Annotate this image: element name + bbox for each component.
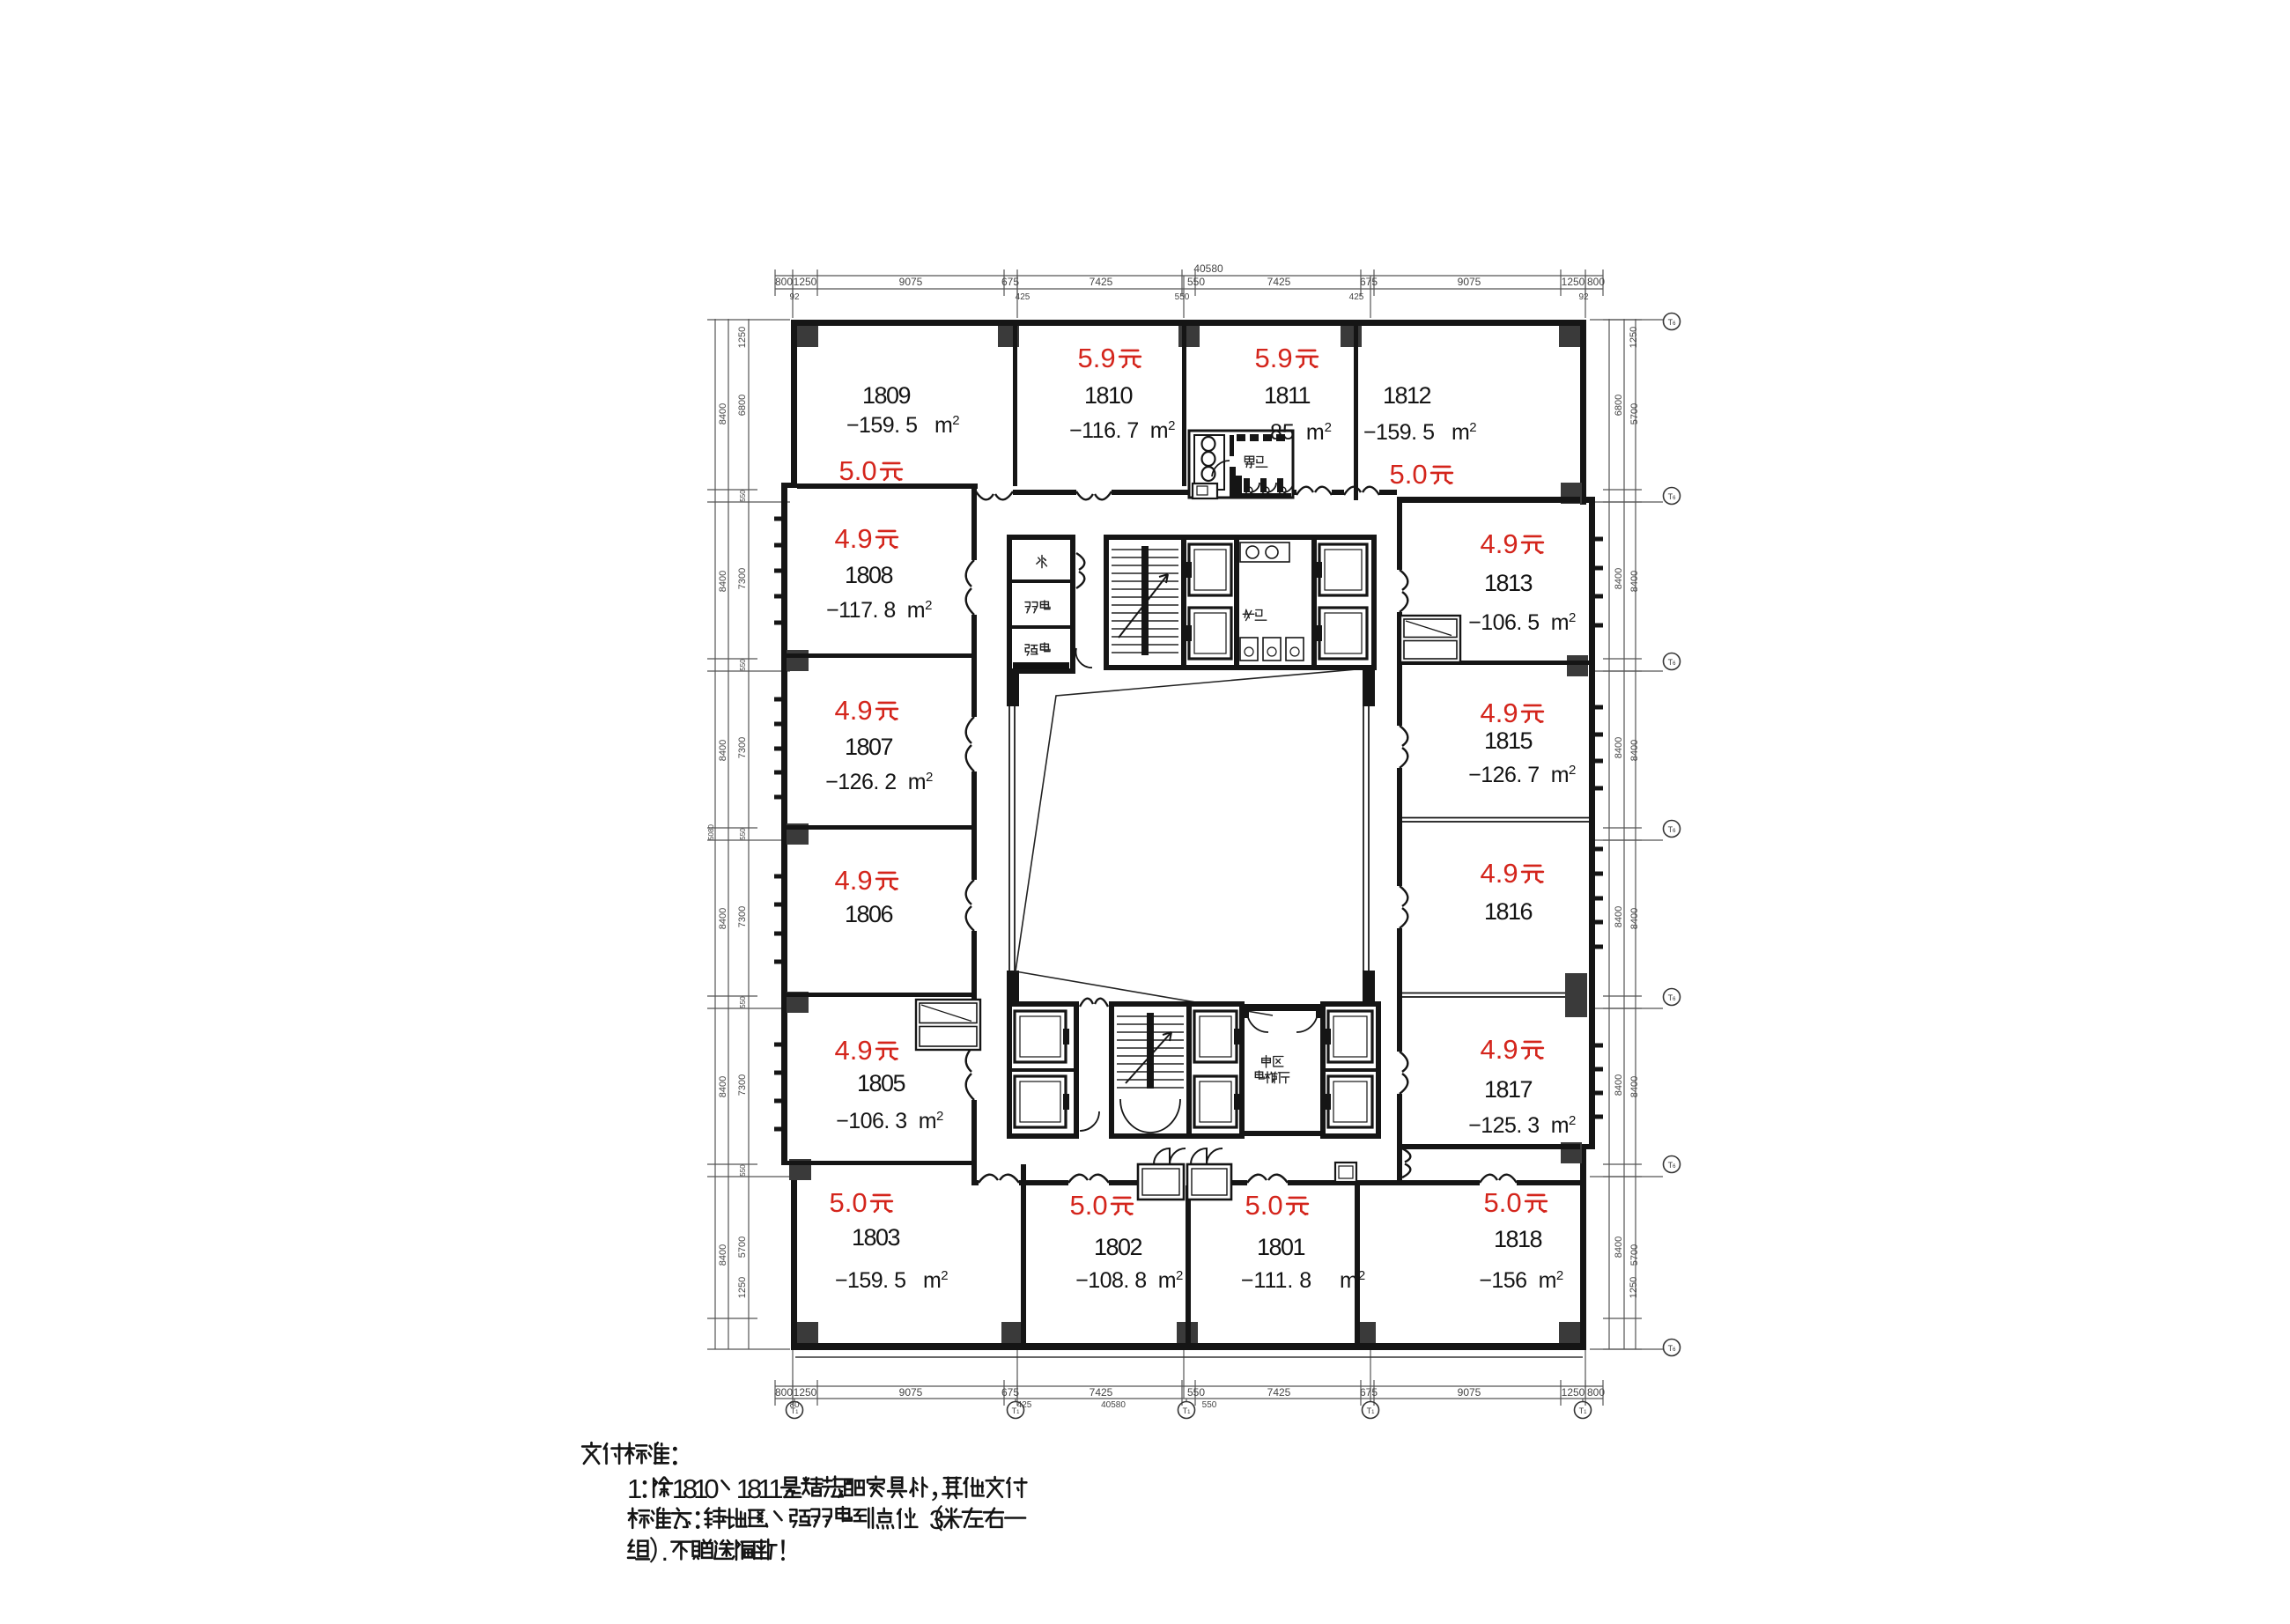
svg-text:6800: 6800 <box>737 395 748 416</box>
svg-text:800: 800 <box>1587 1386 1605 1399</box>
svg-text:800: 800 <box>775 276 793 288</box>
svg-text:1812: 1812 <box>1383 382 1431 409</box>
svg-text:550: 550 <box>1175 292 1190 302</box>
svg-text:1815: 1815 <box>1484 727 1533 754</box>
svg-text:550: 550 <box>1187 276 1205 288</box>
svg-text:！: ！ <box>776 1536 803 1567</box>
svg-text:1803: 1803 <box>852 1224 900 1251</box>
svg-text:8400: 8400 <box>1629 1076 1640 1097</box>
svg-text:8400: 8400 <box>1614 1236 1624 1258</box>
svg-text:5.9: 5.9 <box>1078 343 1116 373</box>
svg-text:1808: 1808 <box>845 562 893 588</box>
svg-text:1806: 1806 <box>845 901 893 927</box>
svg-text:−117. 8m2: −117. 8m2 <box>826 598 932 623</box>
svg-text:1: 1 <box>768 1473 783 1504</box>
svg-text:4.9: 4.9 <box>1481 528 1518 559</box>
svg-text:425: 425 <box>1016 292 1030 302</box>
svg-text:8400: 8400 <box>1614 737 1624 758</box>
svg-text:1250: 1250 <box>737 327 748 348</box>
svg-text:550: 550 <box>739 490 747 502</box>
svg-text:550: 550 <box>739 659 747 671</box>
svg-text:1250: 1250 <box>1562 1386 1585 1399</box>
svg-text:1805: 1805 <box>857 1070 905 1096</box>
svg-text:8400: 8400 <box>1614 568 1624 589</box>
svg-text:9075: 9075 <box>899 1386 923 1399</box>
svg-text:550: 550 <box>739 1164 747 1177</box>
svg-text:3: 3 <box>929 1504 944 1535</box>
svg-text:8400: 8400 <box>718 403 728 424</box>
svg-text:40580: 40580 <box>1101 1400 1126 1410</box>
svg-text:−111. 8: −111. 8 <box>1241 1268 1311 1293</box>
svg-text:550: 550 <box>1202 1400 1217 1410</box>
svg-text:−126. 7m2: −126. 7m2 <box>1468 763 1576 787</box>
svg-text:5.0: 5.0 <box>1484 1187 1522 1218</box>
svg-text:4.9: 4.9 <box>1481 698 1518 728</box>
svg-text:1811: 1811 <box>1264 382 1311 409</box>
svg-text:4.9: 4.9 <box>835 695 873 726</box>
svg-text:1817: 1817 <box>1484 1076 1533 1103</box>
svg-text:7300: 7300 <box>737 568 748 589</box>
svg-text:1250: 1250 <box>1562 276 1585 288</box>
svg-text:8400: 8400 <box>1614 906 1624 927</box>
svg-text:9075: 9075 <box>899 276 923 288</box>
svg-text:.: . <box>661 1536 669 1567</box>
svg-text:675: 675 <box>1001 276 1019 288</box>
svg-text:8400: 8400 <box>1629 740 1640 761</box>
svg-text:−156m2: −156m2 <box>1479 1268 1563 1293</box>
svg-text:1807: 1807 <box>845 734 893 760</box>
svg-text:7300: 7300 <box>737 906 748 927</box>
svg-text:1250: 1250 <box>794 1386 817 1399</box>
svg-text:7300: 7300 <box>737 737 748 758</box>
svg-text:−126. 2m2: −126. 2m2 <box>825 770 933 794</box>
svg-text:8400: 8400 <box>718 1244 728 1266</box>
svg-text:5.0: 5.0 <box>839 455 877 486</box>
svg-text:5.0: 5.0 <box>1245 1190 1283 1221</box>
svg-text:−125. 3m2: −125. 3m2 <box>1468 1113 1576 1138</box>
svg-text:1250: 1250 <box>1629 327 1639 348</box>
svg-text:8400: 8400 <box>1629 908 1640 929</box>
svg-text:7300: 7300 <box>737 1074 748 1096</box>
svg-text:92: 92 <box>789 292 800 302</box>
svg-text:1813: 1813 <box>1484 570 1533 596</box>
svg-text:−106. 5m2: −106. 5m2 <box>1468 610 1576 635</box>
svg-text:425: 425 <box>1349 292 1364 302</box>
svg-text:1810: 1810 <box>1084 382 1133 409</box>
svg-text:8400: 8400 <box>718 740 728 761</box>
svg-text:675: 675 <box>1360 1386 1378 1399</box>
svg-text:5.0: 5.0 <box>1390 459 1428 490</box>
svg-text:7425: 7425 <box>1090 276 1113 288</box>
svg-text:1818: 1818 <box>1494 1226 1542 1252</box>
svg-text:5080: 5080 <box>707 824 715 840</box>
svg-text:8400: 8400 <box>1629 571 1640 592</box>
svg-text:1802: 1802 <box>1094 1234 1142 1260</box>
svg-text:1816: 1816 <box>1484 898 1533 925</box>
svg-text:6800: 6800 <box>1614 395 1624 416</box>
svg-text:1250: 1250 <box>737 1277 748 1298</box>
svg-text:8400: 8400 <box>718 1076 728 1097</box>
svg-text:800: 800 <box>1587 276 1605 288</box>
svg-text:5700: 5700 <box>1629 403 1640 424</box>
svg-text:−159. 5 m2: −159. 5 m2 <box>835 1268 948 1293</box>
svg-text:1801: 1801 <box>1257 1234 1305 1260</box>
svg-text:550: 550 <box>1187 1386 1205 1399</box>
svg-text:5.9: 5.9 <box>1255 343 1293 373</box>
svg-text:7425: 7425 <box>1090 1386 1113 1399</box>
svg-text:5700: 5700 <box>737 1236 748 1258</box>
svg-text:：: ： <box>668 1439 696 1471</box>
svg-text:4.9: 4.9 <box>835 1035 873 1066</box>
svg-text:4.9: 4.9 <box>835 523 873 554</box>
svg-text:8400: 8400 <box>718 908 728 929</box>
svg-text:−159. 5 m2: −159. 5 m2 <box>1363 420 1476 445</box>
svg-text:5700: 5700 <box>1629 1244 1640 1266</box>
svg-text:92: 92 <box>1578 292 1589 302</box>
svg-text:−159. 5 m2: −159. 5 m2 <box>846 413 959 438</box>
svg-text:675: 675 <box>1001 1386 1019 1399</box>
svg-text:4.9: 4.9 <box>1481 1034 1518 1065</box>
svg-text:0: 0 <box>704 1473 719 1504</box>
svg-text:9075: 9075 <box>1458 1386 1481 1399</box>
svg-text:1809: 1809 <box>862 382 911 409</box>
svg-text:4.9: 4.9 <box>835 865 873 896</box>
svg-text:4.9: 4.9 <box>1481 858 1518 889</box>
svg-text:−108. 8m2: −108. 8m2 <box>1075 1268 1183 1293</box>
svg-text:800: 800 <box>775 1386 793 1399</box>
svg-text:675: 675 <box>1360 276 1378 288</box>
svg-text:40580: 40580 <box>1193 262 1223 275</box>
svg-text:550: 550 <box>739 996 747 1008</box>
svg-text:1250: 1250 <box>794 276 817 288</box>
svg-text:1250: 1250 <box>1629 1277 1639 1298</box>
svg-text:8400: 8400 <box>718 571 728 592</box>
svg-text:−116. 7m2: −116. 7m2 <box>1069 418 1175 443</box>
svg-text:7425: 7425 <box>1267 1386 1291 1399</box>
svg-text:5.0: 5.0 <box>830 1187 868 1218</box>
svg-text:550: 550 <box>739 828 747 840</box>
svg-text:5.0: 5.0 <box>1070 1190 1108 1221</box>
svg-text:7425: 7425 <box>1267 276 1291 288</box>
svg-text:−106. 3m2: −106. 3m2 <box>836 1109 943 1133</box>
svg-text:9075: 9075 <box>1458 276 1481 288</box>
svg-text:8400: 8400 <box>1614 1074 1624 1096</box>
